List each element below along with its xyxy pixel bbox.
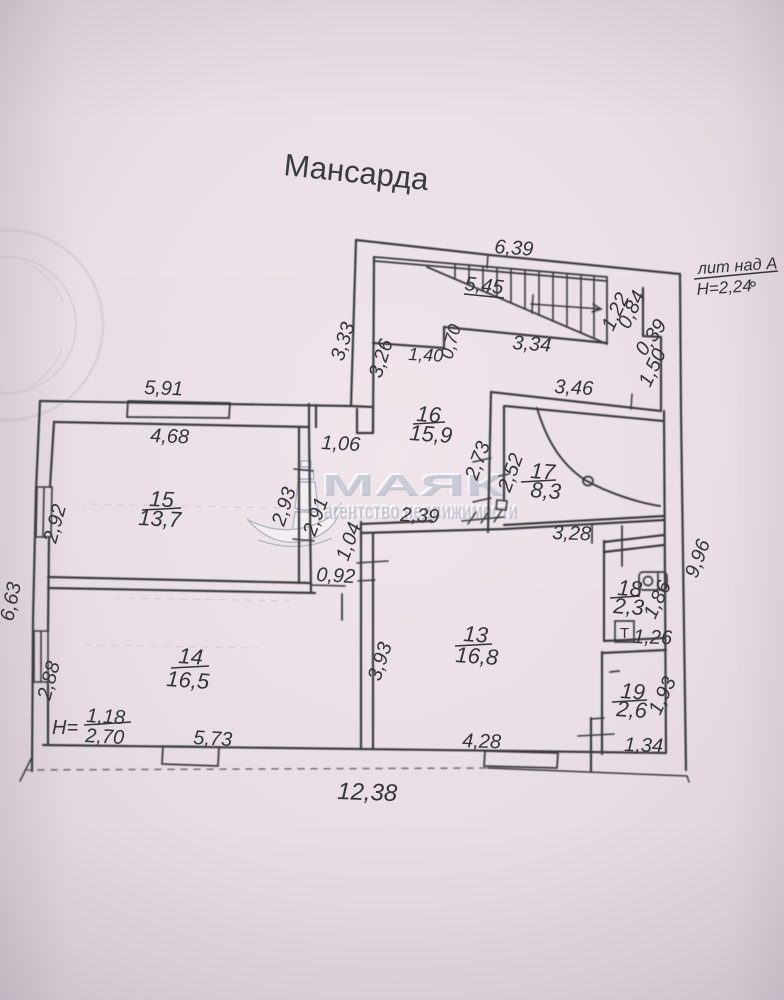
svg-text:3,46: 3,46 — [554, 376, 595, 400]
svg-text:3,28: 3,28 — [552, 522, 592, 545]
svg-text:5,73: 5,73 — [193, 727, 233, 751]
svg-text:0,92: 0,92 — [316, 564, 356, 588]
svg-text:5,91: 5,91 — [144, 377, 184, 400]
svg-text:16,8: 16,8 — [455, 642, 500, 670]
svg-text:4,68: 4,68 — [150, 425, 190, 448]
svg-text:1,34: 1,34 — [624, 734, 664, 757]
svg-text:4,28: 4,28 — [462, 730, 502, 753]
svg-text:1,06: 1,06 — [321, 432, 362, 456]
svg-text:8,3: 8,3 — [530, 477, 563, 504]
svg-text:2,6: 2,6 — [615, 696, 649, 723]
svg-text:2,70: 2,70 — [84, 725, 125, 749]
svg-text:12,38: 12,38 — [337, 778, 399, 807]
svg-text:16,5: 16,5 — [166, 666, 211, 694]
svg-text:13,7: 13,7 — [138, 505, 183, 532]
svg-text:6,39: 6,39 — [494, 236, 534, 261]
svg-text:2,39: 2,39 — [399, 504, 440, 528]
svg-text:Н=: Н= — [52, 717, 78, 739]
svg-text:3,34: 3,34 — [512, 332, 552, 357]
svg-text:14: 14 — [178, 643, 204, 670]
svg-text:1,26: 1,26 — [633, 626, 674, 649]
svg-text:2,3: 2,3 — [612, 593, 646, 620]
svg-text:Т: Т — [620, 625, 629, 642]
svg-text:Н=2,24: Н=2,24 — [696, 276, 752, 299]
svg-text:15,9: 15,9 — [409, 420, 453, 448]
